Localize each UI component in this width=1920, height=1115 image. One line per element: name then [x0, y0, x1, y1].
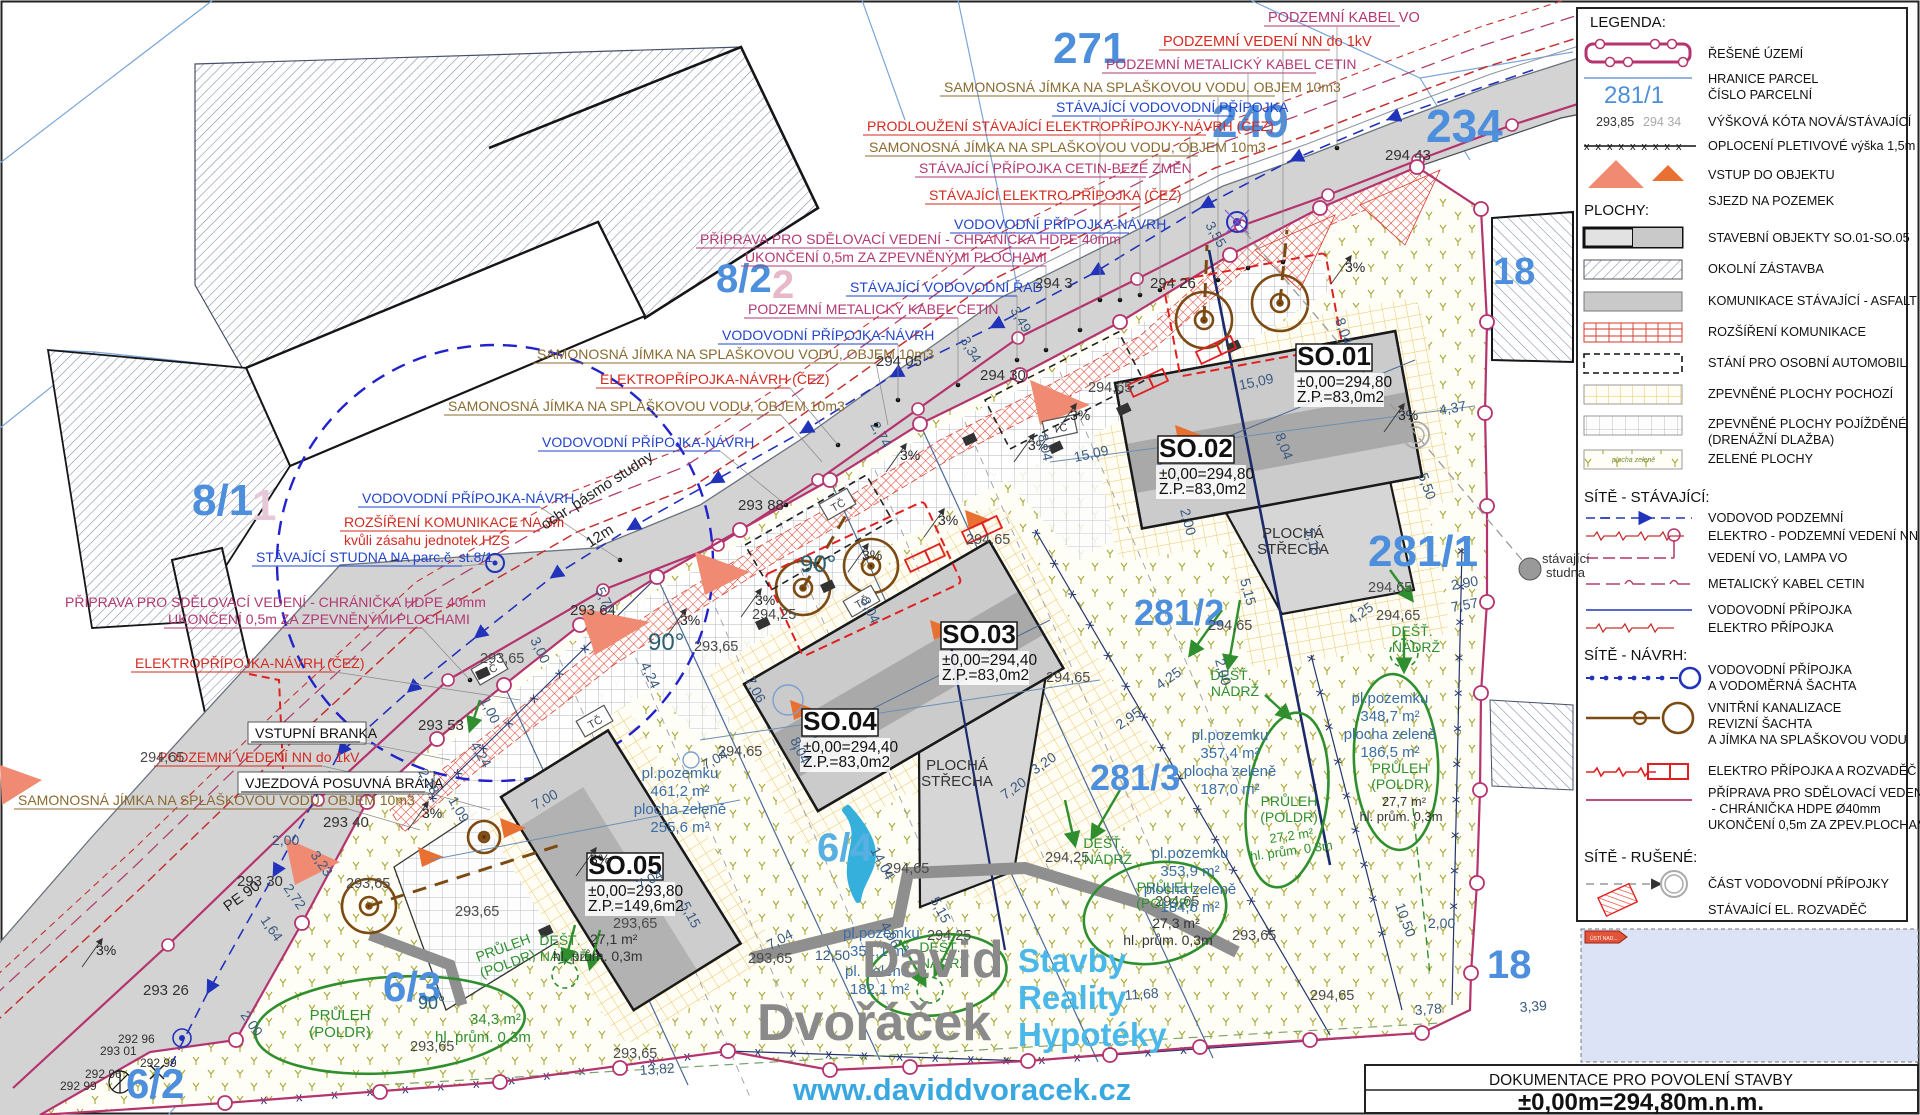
svg-text:VODOVODNÍ PŘÍPOJKA-NÁVRH: VODOVODNÍ PŘÍPOJKA-NÁVRH: [362, 490, 574, 506]
svg-text:(POLDR): (POLDR): [1260, 809, 1318, 825]
svg-text:ELEKTRO - PODZEMNÍ VEDENÍ NN: ELEKTRO - PODZEMNÍ VEDENÍ NN: [1708, 528, 1918, 543]
svg-text:294 43: 294 43: [1385, 147, 1431, 164]
svg-text:KOMUNIKACE STÁVAJÍCÍ - ASFALT: KOMUNIKACE STÁVAJÍCÍ - ASFALT: [1708, 293, 1917, 308]
svg-text:ELEKTROPŘÍPOJKA-NÁVRH (ČEZ): ELEKTROPŘÍPOJKA-NÁVRH (ČEZ): [135, 655, 364, 671]
svg-text:A JÍMKA NA SPLAŠKOVOU VODU: A JÍMKA NA SPLAŠKOVOU VODU: [1708, 732, 1907, 747]
svg-text:ROZŠÍŘENÍ KOMUNIKACE NA 3m: ROZŠÍŘENÍ KOMUNIKACE NA 3m: [344, 514, 564, 530]
svg-text:3%: 3%: [1070, 407, 1090, 423]
svg-text:11,68: 11,68: [1124, 985, 1159, 1003]
svg-text:ZPEVNĚNÉ PLOCHY POCHOZÍ: ZPEVNĚNÉ PLOCHY POCHOZÍ: [1708, 386, 1894, 401]
svg-text:UKONČENÍ 0,5m ZA ZPEV.PLOCHAMI: UKONČENÍ 0,5m ZA ZPEV.PLOCHAMI: [1708, 817, 1920, 832]
svg-text:293,85: 293,85: [1596, 115, 1634, 129]
svg-text:3%: 3%: [1398, 407, 1418, 423]
svg-text:18: 18: [1493, 251, 1535, 293]
svg-text:293,65: 293,65: [346, 876, 390, 892]
svg-text:3%: 3%: [900, 447, 920, 463]
svg-text:293,65: 293,65: [613, 1046, 657, 1062]
svg-text:294,25: 294,25: [752, 607, 796, 623]
svg-text:6/4: 6/4: [817, 826, 873, 870]
svg-text:SAMONOSNÁ JÍMKA NA SPLAŠKOVOU: SAMONOSNÁ JÍMKA NA SPLAŠKOVOU VODU, OBJE…: [537, 346, 934, 362]
svg-text:186,5 m²: 186,5 m²: [1360, 744, 1419, 761]
svg-text:STAVEBNÍ OBJEKTY SO.01-SO.05: STAVEBNÍ OBJEKTY SO.01-SO.05: [1708, 230, 1910, 245]
svg-text:234: 234: [1426, 100, 1503, 152]
svg-text:±0,00m=294,80m.n.m.: ±0,00m=294,80m.n.m.: [1518, 1089, 1764, 1115]
svg-text:ZPEVNĚNÉ PLOCHY POJÍŽDĚNÉ: ZPEVNĚNÉ PLOCHY POJÍŽDĚNÉ: [1708, 416, 1907, 431]
svg-text:PŘÍPRAVA PRO SDĚLOVACÍ VEDENÍ: PŘÍPRAVA PRO SDĚLOVACÍ VEDENÍ - CHRÁNIČK…: [700, 231, 1121, 247]
svg-text:STÁVAJÍCÍ EL. ROZVADĚČ: STÁVAJÍCÍ EL. ROZVADĚČ: [1708, 902, 1867, 917]
svg-text:8/1: 8/1: [192, 476, 253, 525]
svg-text:34,3 m²: 34,3 m²: [470, 1011, 521, 1028]
svg-text:LEGENDA:: LEGENDA:: [1590, 14, 1666, 31]
svg-text:353,9 m²: 353,9 m²: [1160, 863, 1219, 880]
svg-text:VEDENÍ VO, LAMPA VO: VEDENÍ VO, LAMPA VO: [1708, 550, 1848, 565]
svg-text:90°: 90°: [800, 551, 836, 578]
svg-text:- CHRÁNIČKA HDPE Ø40mm: - CHRÁNIČKA HDPE Ø40mm: [1708, 801, 1881, 816]
svg-text:255,6 m²: 255,6 m²: [650, 819, 709, 836]
svg-text:90°: 90°: [418, 993, 445, 1013]
svg-text:293 53: 293 53: [418, 717, 464, 734]
svg-text:hl. prům. 0,3m: hl. prům. 0,3m: [435, 1029, 531, 1046]
svg-text:PŘÍPRAVA PRO SDĚLOVACÍ VEDENÍ: PŘÍPRAVA PRO SDĚLOVACÍ VEDENÍ: [1708, 785, 1920, 800]
svg-text:STÁVAJÍCÍ ELEKTRO PŘÍPOJKA (ČE: STÁVAJÍCÍ ELEKTRO PŘÍPOJKA (ČEZ): [929, 187, 1182, 203]
svg-text:2,00: 2,00: [272, 832, 299, 848]
svg-text:281/1: 281/1: [1604, 82, 1664, 109]
svg-text:Z.P.=83,0m2: Z.P.=83,0m2: [1297, 389, 1384, 406]
svg-text:3%: 3%: [938, 512, 958, 528]
svg-text:PODZEMNÍ METALICKÝ KABEL CETIN: PODZEMNÍ METALICKÝ KABEL CETIN: [748, 301, 999, 317]
svg-text:Z.P.=149,6m2: Z.P.=149,6m2: [588, 898, 684, 915]
svg-text:293 26: 293 26: [143, 982, 189, 999]
svg-text:293 40: 293 40: [323, 814, 369, 831]
svg-text:NÁDRŽ: NÁDRŽ: [1211, 683, 1260, 699]
svg-text:184,6 m²: 184,6 m²: [1160, 899, 1219, 916]
svg-text:293 01: 293 01: [100, 1044, 137, 1058]
svg-text:292 99: 292 99: [140, 1056, 177, 1070]
svg-text:SO.04: SO.04: [803, 706, 877, 736]
svg-text:293 88: 293 88: [738, 497, 784, 514]
svg-text:DEŠŤ.: DEŠŤ.: [539, 932, 580, 948]
svg-text:294 34: 294 34: [1643, 115, 1681, 129]
svg-text:Hypotéky: Hypotéky: [1018, 1016, 1167, 1053]
svg-text:SAMONOSNÁ JÍMKA NA SPLAŠKOVOU: SAMONOSNÁ JÍMKA NA SPLAŠKOVOU VODU, OBJE…: [18, 792, 415, 808]
svg-text:OKOLNÍ ZÁSTAVBA: OKOLNÍ ZÁSTAVBA: [1708, 261, 1824, 276]
svg-text:REVIZNÍ ŠACHTA: REVIZNÍ ŠACHTA: [1708, 716, 1813, 731]
svg-text:plocha zeleně: plocha zeleně: [1344, 726, 1437, 743]
svg-text:hl. prům. 0,3m: hl. prům. 0,3m: [1123, 932, 1212, 948]
svg-text:294,65: 294,65: [1368, 580, 1412, 596]
svg-text:plocha zeleně: plocha zeleně: [1611, 457, 1655, 464]
svg-text:OPLOCENÍ PLETIVOVÉ výška 1,5m: OPLOCENÍ PLETIVOVÉ výška 1,5m: [1708, 138, 1915, 153]
svg-text:294 05: 294 05: [876, 353, 922, 370]
svg-text:357,4 m²: 357,4 m²: [1200, 745, 1259, 762]
svg-text:NÁDRŽ: NÁDRŽ: [1392, 639, 1441, 655]
svg-text:SO.02: SO.02: [1159, 433, 1233, 463]
svg-text:PŘÍPRAVA PRO SDĚLOVACÍ VEDENÍ: PŘÍPRAVA PRO SDĚLOVACÍ VEDENÍ - CHRÁNIČK…: [65, 594, 486, 610]
svg-text:294 26: 294 26: [1150, 275, 1196, 292]
svg-text:PLOCHÁ: PLOCHÁ: [926, 757, 988, 774]
svg-text:xxxxxxxxx: xxxxxxxxx: [1584, 141, 1688, 153]
svg-text:Dvořáček: Dvořáček: [757, 994, 991, 1052]
svg-text:ČÁST VODOVODNÍ PŘÍPOJKY: ČÁST VODOVODNÍ PŘÍPOJKY: [1708, 876, 1889, 891]
svg-text:NÁDRŽ: NÁDRŽ: [1084, 851, 1133, 867]
svg-text:3,39: 3,39: [1519, 997, 1548, 1015]
svg-text:VODOVODNÍ PŘÍPOJKA-NÁVRH: VODOVODNÍ PŘÍPOJKA-NÁVRH: [954, 216, 1166, 232]
svg-text:348,7 m²: 348,7 m²: [1360, 708, 1419, 725]
svg-text:SAMONOSNÁ JÍMKA NA SPLAŠKOVOU: SAMONOSNÁ JÍMKA NA SPLAŠKOVOU VODU, OBJE…: [869, 139, 1266, 155]
svg-text:SAMONOSNÁ JÍMKA NA SPLAŠKOVOU: SAMONOSNÁ JÍMKA NA SPLAŠKOVOU VODU, OBJE…: [944, 79, 1341, 95]
svg-text:UKONČENÍ 0,5m ZA ZPEVNĚNÝMI PL: UKONČENÍ 0,5m ZA ZPEVNĚNÝMI PLOCHAMI: [745, 249, 1047, 265]
svg-text:294,65: 294,65: [140, 750, 184, 766]
svg-text:ELEKTRO PŘÍPOJKA A ROZVADĚČ: ELEKTRO PŘÍPOJKA A ROZVADĚČ: [1708, 763, 1916, 778]
svg-text:(POLDR): (POLDR): [1371, 776, 1429, 792]
svg-text:www.daviddvoracek.cz: www.daviddvoracek.cz: [792, 1072, 1131, 1107]
svg-text:STŘECHA: STŘECHA: [921, 773, 993, 790]
svg-text:METALICKÝ KABEL CETIN: METALICKÝ KABEL CETIN: [1708, 576, 1865, 591]
svg-text:STÁVAJÍCÍ STUDNA NA parc.č. st: STÁVAJÍCÍ STUDNA NA parc.č. st.8/1: [256, 549, 493, 565]
svg-text:12,50: 12,50: [815, 947, 850, 963]
svg-text:293,65: 293,65: [613, 916, 657, 932]
svg-text:PODZEMNÍ METALICKÝ KABEL CETIN: PODZEMNÍ METALICKÝ KABEL CETIN: [1106, 56, 1357, 72]
svg-text:294,65: 294,65: [1046, 670, 1090, 686]
svg-text:294,65: 294,65: [1310, 988, 1354, 1004]
svg-text:SÍTĚ - NÁVRH:: SÍTĚ - NÁVRH:: [1584, 647, 1687, 664]
svg-text:PRŮLEH: PRŮLEH: [1261, 792, 1318, 809]
svg-text:VSTUP DO OBJEKTU: VSTUP DO OBJEKTU: [1708, 168, 1835, 182]
svg-text:DOKUMENTACE PRO POVOLENÍ STAVB: DOKUMENTACE PRO POVOLENÍ STAVBY: [1489, 1072, 1793, 1089]
svg-text:(POLDR): (POLDR): [309, 1024, 371, 1041]
svg-text:294,65: 294,65: [1208, 618, 1252, 634]
svg-text:David: David: [862, 931, 1004, 989]
svg-text:294,25: 294,25: [1045, 850, 1089, 866]
svg-text:3%: 3%: [590, 851, 610, 867]
svg-text:Z.P.=83,0m2: Z.P.=83,0m2: [1159, 481, 1246, 498]
svg-text:DEŠŤ.: DEŠŤ.: [1083, 835, 1124, 851]
svg-text:VODOVODNÍ PŘÍPOJKA-NÁVRH: VODOVODNÍ PŘÍPOJKA-NÁVRH: [542, 434, 754, 450]
svg-text:VODOVOD PODZEMNÍ: VODOVOD PODZEMNÍ: [1708, 510, 1844, 525]
svg-text:293,65: 293,65: [1232, 928, 1276, 944]
svg-text:A VODOMĚRNÁ ŠACHTA: A VODOMĚRNÁ ŠACHTA: [1708, 678, 1857, 693]
svg-text:VJEZDOVÁ POSUVNÁ BRÁNA: VJEZDOVÁ POSUVNÁ BRÁNA: [245, 775, 444, 791]
svg-text:27,1 m²: 27,1 m²: [590, 931, 638, 947]
svg-text:SÍTĚ - RUŠENÉ:: SÍTĚ - RUŠENÉ:: [1584, 849, 1697, 866]
svg-text:SAMONOSNÁ JÍMKA NA SPLAŠKOVOU: SAMONOSNÁ JÍMKA NA SPLAŠKOVOU VODU, OBJE…: [448, 398, 845, 414]
svg-text:ROZŠÍŘENÍ KOMUNIKACE: ROZŠÍŘENÍ KOMUNIKACE: [1708, 324, 1866, 339]
svg-text:hl. prům. 0,3m: hl. prům. 0,3m: [1359, 809, 1442, 824]
svg-text:stávající: stávající: [1542, 551, 1590, 566]
svg-text:13,82: 13,82: [639, 1060, 675, 1078]
svg-text:STÁVAJÍCÍ PŘÍPOJKA CETIN-BEZE: STÁVAJÍCÍ PŘÍPOJKA CETIN-BEZE ZMĚN: [919, 160, 1192, 176]
svg-text:UKONČENÍ 0,5m ZA ZPEVNĚNÝMI PL: UKONČENÍ 0,5m ZA ZPEVNĚNÝMI PLOCHAMI: [168, 611, 470, 627]
svg-text:27,3 m²: 27,3 m²: [1152, 915, 1200, 931]
svg-text:293,65: 293,65: [455, 904, 499, 920]
svg-text:VODOVODNÍ PŘÍPOJKA: VODOVODNÍ PŘÍPOJKA: [1708, 662, 1852, 677]
svg-text:ŘEŠENÉ ÚZEMÍ: ŘEŠENÉ ÚZEMÍ: [1708, 46, 1804, 61]
svg-text:294 3: 294 3: [1035, 275, 1073, 292]
svg-text:281/3: 281/3: [1090, 757, 1180, 798]
svg-text:Stavby: Stavby: [1018, 942, 1127, 979]
svg-text:pl.pozemku: pl.pozemku: [1352, 690, 1429, 707]
svg-text:hl. prům. 0,3m: hl. prům. 0,3m: [553, 948, 642, 964]
svg-text:292 99: 292 99: [60, 1079, 97, 1093]
svg-text:SJEZD NA POZEMEK: SJEZD NA POZEMEK: [1708, 194, 1835, 208]
svg-text:27,7 m²: 27,7 m²: [1382, 794, 1427, 809]
svg-text:STÁVAJÍCÍ VODOVODNÍ ŘAD: STÁVAJÍCÍ VODOVODNÍ ŘAD: [850, 279, 1043, 295]
svg-text:HRANICE PARCEL: HRANICE PARCEL: [1708, 72, 1818, 86]
svg-text:1: 1: [252, 481, 276, 530]
svg-text:pl.pozemku: pl.pozemku: [1192, 727, 1269, 744]
svg-text:3%: 3%: [96, 942, 116, 958]
svg-text:90°: 90°: [648, 629, 684, 656]
svg-text:Z.P.=83,0m2: Z.P.=83,0m2: [803, 754, 890, 771]
svg-text:3%: 3%: [1345, 259, 1365, 275]
svg-text:(DRENÁŽNÍ DLAŽBA): (DRENÁŽNÍ DLAŽBA): [1708, 432, 1834, 447]
svg-text:PLOCHY:: PLOCHY:: [1584, 202, 1649, 219]
svg-text:294,65: 294,65: [966, 532, 1010, 548]
svg-text:SÍTĚ - STÁVAJÍCÍ:: SÍTĚ - STÁVAJÍCÍ:: [1584, 489, 1710, 506]
svg-text:STÁVAJÍCÍ VODOVODNÍ PŘÍPOJKA: STÁVAJÍCÍ VODOVODNÍ PŘÍPOJKA: [1056, 99, 1289, 115]
svg-text:PRŮLEH: PRŮLEH: [1372, 759, 1429, 776]
svg-text:ČÍSLO PARCELNÍ: ČÍSLO PARCELNÍ: [1708, 87, 1813, 102]
svg-text:plocha zeleně: plocha zeleně: [634, 801, 727, 818]
svg-text:293 30: 293 30: [237, 873, 283, 890]
svg-text:STÁNÍ PRO OSOBNÍ AUTOMOBIL: STÁNÍ PRO OSOBNÍ AUTOMOBIL: [1708, 355, 1907, 370]
svg-text:SO.03: SO.03: [942, 619, 1016, 649]
svg-text:2,00: 2,00: [1428, 915, 1455, 931]
svg-text:3%: 3%: [422, 805, 442, 821]
svg-text:PRŮLEH: PRŮLEH: [310, 1006, 371, 1024]
svg-text:plocha zeleně: plocha zeleně: [1184, 763, 1277, 780]
svg-text:PODZEMNÍ KABEL VO: PODZEMNÍ KABEL VO: [1268, 9, 1420, 26]
svg-text:VNITŘNÍ KANALIZACE: VNITŘNÍ KANALIZACE: [1708, 700, 1841, 715]
svg-text:ELEKTRO PŘÍPOJKA: ELEKTRO PŘÍPOJKA: [1708, 620, 1834, 635]
svg-text:VÝŠKOVÁ KÓTA NOVÁ/STÁVAJÍCÍ: VÝŠKOVÁ KÓTA NOVÁ/STÁVAJÍCÍ: [1708, 114, 1912, 129]
svg-text:PRODLOUŽENÍ STÁVAJÍCÍ ELEKTROP: PRODLOUŽENÍ STÁVAJÍCÍ ELEKTROPŘÍPOJKY-NÁ…: [867, 118, 1274, 134]
svg-text:ELEKTROPŘÍPOJKA-NÁVRH (ČEZ): ELEKTROPŘÍPOJKA-NÁVRH (ČEZ): [600, 371, 829, 387]
svg-text:294 30: 294 30: [980, 367, 1026, 384]
svg-text:studna: studna: [1546, 565, 1586, 580]
svg-text:293,65: 293,65: [694, 639, 738, 655]
svg-text:461,2 m²: 461,2 m²: [650, 783, 709, 800]
svg-text:3,78: 3,78: [1414, 1000, 1443, 1018]
svg-text:VODOVODNÍ PŘÍPOJKA: VODOVODNÍ PŘÍPOJKA: [1708, 602, 1852, 617]
svg-text:294,65: 294,65: [1088, 380, 1132, 396]
svg-text:ÚSTÍ NAD...: ÚSTÍ NAD...: [1590, 935, 1618, 942]
svg-text:187,0 m²: 187,0 m²: [1200, 781, 1259, 798]
svg-text:294,65: 294,65: [1376, 608, 1420, 624]
svg-text:SO.01: SO.01: [1297, 341, 1371, 371]
svg-text:DEŠŤ.: DEŠŤ.: [1391, 623, 1432, 639]
svg-text:Reality: Reality: [1018, 979, 1127, 1016]
svg-text:281/1: 281/1: [1368, 527, 1478, 576]
svg-text:PODZEMNÍ VEDENÍ NN do 1kV: PODZEMNÍ VEDENÍ NN do 1kV: [1163, 33, 1372, 50]
svg-text:VSTUPNÍ BRANKA: VSTUPNÍ BRANKA: [255, 725, 378, 741]
svg-text:3%: 3%: [680, 612, 700, 628]
svg-text:18: 18: [1487, 943, 1532, 987]
svg-text:PODZEMNÍ VEDENÍ NN do 1kV: PODZEMNÍ VEDENÍ NN do 1kV: [158, 749, 360, 765]
svg-text:3%: 3%: [862, 547, 882, 563]
svg-text:293,65: 293,65: [480, 651, 524, 667]
svg-text:3%: 3%: [755, 592, 775, 608]
svg-text:kvůli zásahu jednotek HZS: kvůli zásahu jednotek HZS: [344, 532, 510, 548]
svg-text:plocha zeleně: plocha zeleně: [1144, 881, 1237, 898]
svg-text:VODOVODNÍ PŘÍPOJKA-NÁVRH: VODOVODNÍ PŘÍPOJKA-NÁVRH: [722, 327, 934, 343]
svg-text:ZELENÉ PLOCHY: ZELENÉ PLOCHY: [1708, 451, 1814, 466]
svg-text:Z.P.=83,0m2: Z.P.=83,0m2: [942, 667, 1029, 684]
svg-text:293,65: 293,65: [748, 951, 792, 967]
svg-text:pl.pozemku: pl.pozemku: [1152, 845, 1229, 862]
